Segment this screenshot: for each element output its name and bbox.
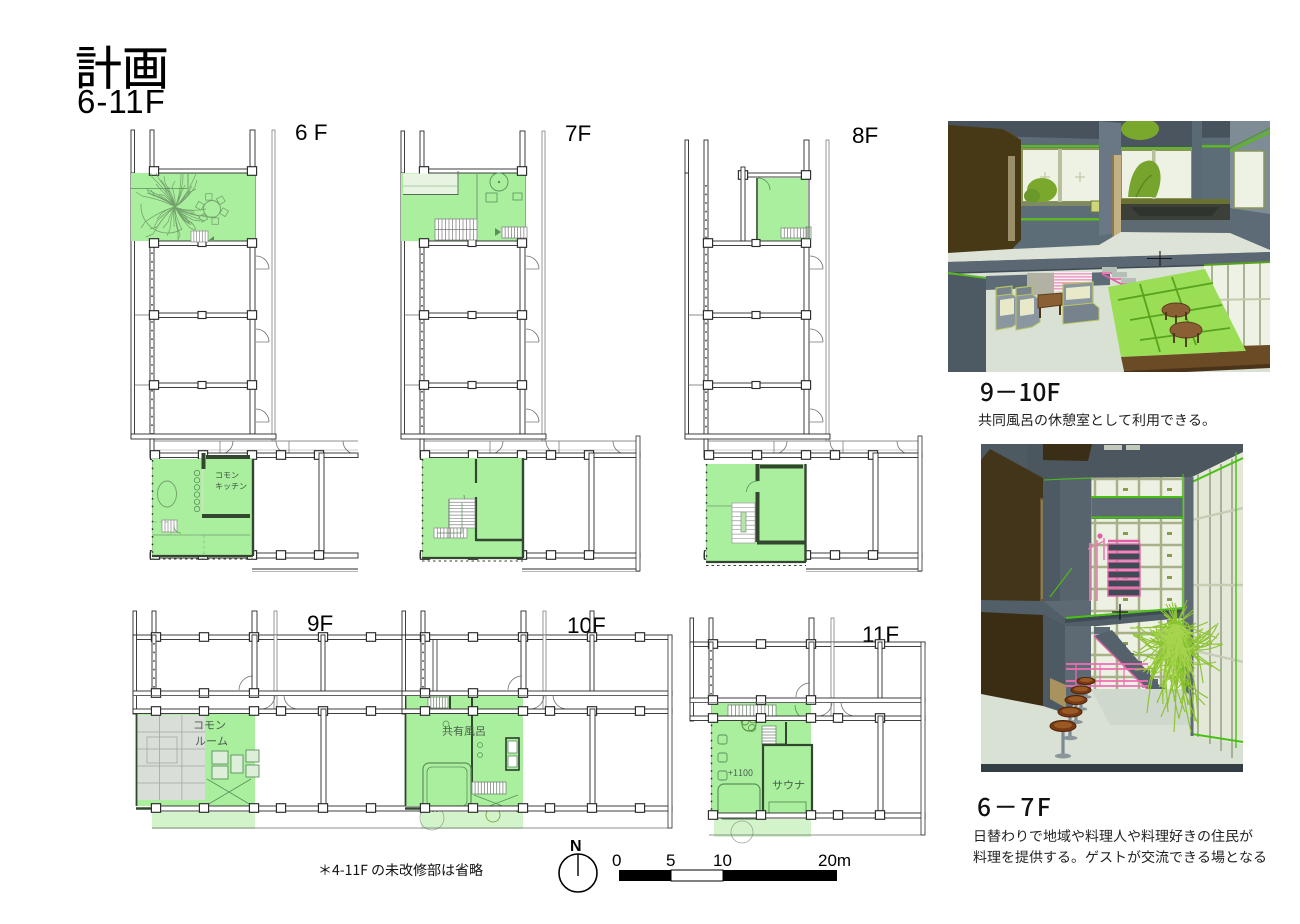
svg-text:7F: 7F [565,121,591,146]
svg-text:0: 0 [612,851,621,870]
svg-text:6 F: 6 F [295,120,328,145]
svg-text:10F: 10F [567,613,606,638]
svg-text:6-11F: 6-11F [77,83,166,120]
svg-text:20m: 20m [818,851,851,870]
svg-text:10: 10 [713,851,732,870]
svg-text:5: 5 [666,851,675,870]
svg-text:N: N [570,838,582,855]
svg-text:8F: 8F [852,123,878,148]
